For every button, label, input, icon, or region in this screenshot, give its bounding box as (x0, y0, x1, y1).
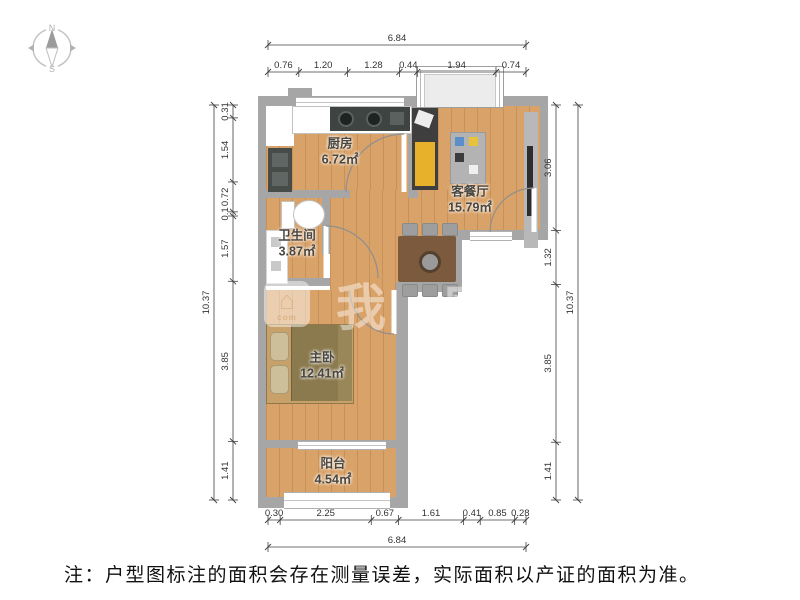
room-area: 4.54㎡ (315, 472, 352, 488)
svg-text:3.85: 3.85 (220, 352, 231, 371)
pillow (270, 332, 289, 361)
room-name: 阳台 (315, 456, 352, 472)
svg-text:1.41: 1.41 (543, 462, 554, 481)
stove-burner (338, 111, 354, 127)
floorplan-canvas: N S (0, 0, 800, 600)
balcony-window (284, 492, 390, 509)
room-area: 3.87㎡ (278, 244, 316, 260)
fridge (412, 108, 438, 190)
pillow (270, 365, 289, 394)
room-area: 6.72㎡ (322, 152, 359, 168)
svg-text:6.84: 6.84 (388, 535, 407, 546)
svg-text:0.31: 0.31 (220, 102, 231, 121)
dining-table-center (419, 251, 441, 273)
room-area: 15.79㎡ (448, 200, 492, 216)
stove-burner (366, 111, 382, 127)
dining-chair (442, 223, 458, 236)
room-label-balcony: 阳台 4.54㎡ (315, 456, 352, 487)
wall-left (258, 96, 266, 508)
kitchen-sink (390, 112, 404, 125)
table-item (469, 165, 478, 174)
svg-text:10.37: 10.37 (565, 291, 576, 315)
svg-text:0.72: 0.72 (220, 188, 231, 207)
svg-text:1.54: 1.54 (220, 141, 231, 160)
cabinet-shelf (272, 172, 288, 186)
dining-chair (422, 223, 438, 236)
svg-text:1.28: 1.28 (364, 60, 383, 71)
wall-bathroom-right (322, 198, 330, 254)
dining-table (398, 236, 456, 282)
svg-text:1.57: 1.57 (220, 239, 231, 258)
wall-right-upper (540, 96, 548, 240)
cabinet-shelf (272, 153, 288, 167)
room-label-bedroom: 主卧 12.41㎡ (300, 350, 344, 381)
svg-text:0.76: 0.76 (274, 60, 293, 71)
dining-chair (402, 223, 418, 236)
svg-text:1.41: 1.41 (220, 461, 231, 480)
kitchen-stove (330, 107, 410, 131)
svg-text:1.32: 1.32 (543, 248, 554, 267)
kitchen-shaft (266, 106, 294, 146)
svg-text:0.67: 0.67 (376, 508, 395, 519)
measurement-note: 注：户型图标注的面积会存在测量误差，实际面积以产证的面积为准。 (64, 560, 700, 587)
dining-chair (422, 284, 438, 297)
compass-icon: N S (22, 18, 86, 82)
compass-south-label: S (49, 64, 55, 74)
svg-text:3.85: 3.85 (543, 354, 554, 373)
sink-basin (271, 261, 281, 271)
room-name: 厨房 (322, 136, 359, 152)
bay-window (416, 66, 504, 108)
fridge-top-item (414, 110, 434, 129)
svg-text:0.1: 0.1 (220, 207, 231, 220)
svg-text:1.20: 1.20 (314, 60, 333, 71)
svg-text:10.37: 10.37 (201, 291, 212, 315)
svg-text:0.30: 0.30 (265, 508, 284, 519)
room-area: 12.41㎡ (300, 366, 344, 382)
wall-right-lower (396, 282, 408, 508)
coffee-table (450, 132, 486, 184)
compass-north-label: N (49, 23, 56, 33)
yellow-cabinet (415, 142, 435, 186)
room-label-living: 客餐厅 15.79㎡ (448, 184, 492, 215)
svg-text:0.41: 0.41 (463, 508, 482, 519)
svg-text:0.74: 0.74 (502, 60, 521, 71)
table-item (455, 153, 464, 162)
kitchen-cabinet (268, 148, 292, 192)
tv (527, 146, 533, 216)
table-item (455, 137, 464, 146)
room-label-kitchen: 厨房 6.72㎡ (322, 136, 359, 167)
tv-cabinet (524, 112, 538, 248)
svg-text:1.61: 1.61 (422, 508, 441, 519)
svg-text:0.85: 0.85 (488, 508, 507, 519)
dining-window (470, 231, 512, 241)
sliding-door (298, 441, 386, 450)
svg-text:0.28: 0.28 (511, 508, 530, 519)
room-name: 主卧 (300, 350, 344, 366)
svg-text:6.84: 6.84 (388, 33, 407, 44)
dining-chair (402, 284, 418, 297)
room-name: 卫生间 (278, 228, 316, 244)
toilet-bowl (293, 200, 325, 229)
svg-text:2.25: 2.25 (316, 508, 335, 519)
dining-chair (442, 284, 458, 297)
svg-text:0.44: 0.44 (399, 60, 418, 71)
table-item (469, 137, 478, 146)
room-name: 客餐厅 (448, 184, 492, 200)
room-label-bathroom: 卫生间 3.87㎡ (278, 228, 316, 259)
